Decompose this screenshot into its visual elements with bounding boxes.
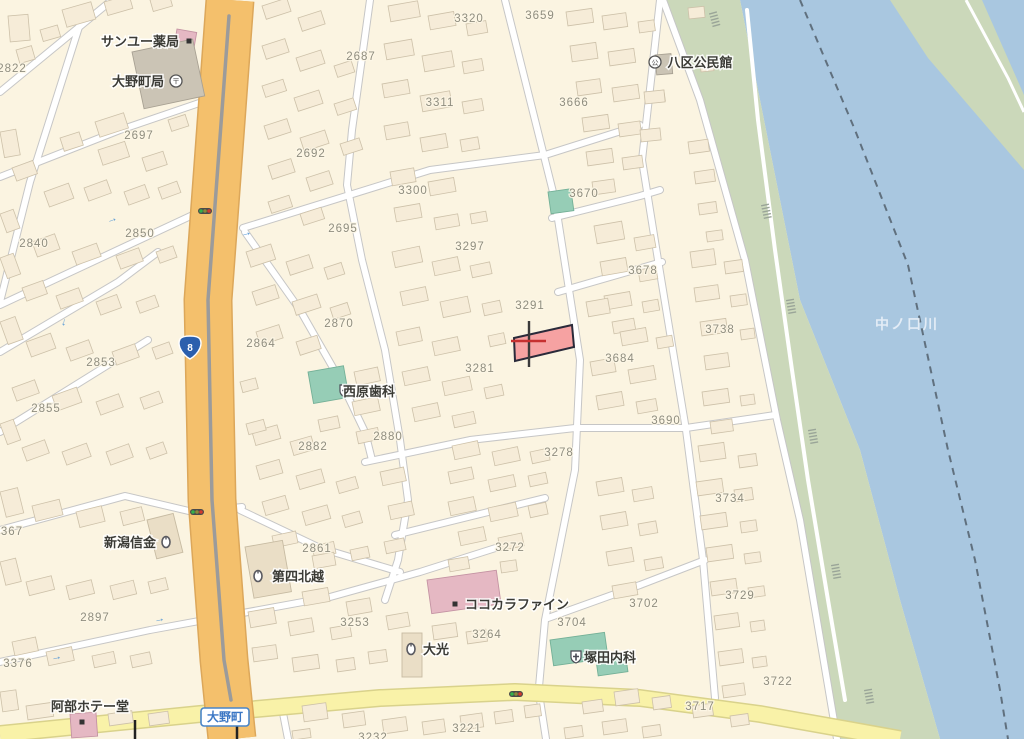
building — [698, 201, 717, 214]
abe-shop-label: 阿部ホテー堂 — [51, 699, 129, 714]
map-svg: 2822269726922687332036593311366636703300… — [0, 0, 1024, 739]
building — [460, 137, 480, 152]
lot-number-label: 3297 — [455, 241, 485, 253]
building — [582, 699, 603, 714]
lot-number-label: 2687 — [346, 51, 376, 63]
building — [706, 230, 723, 242]
lot-number-label: 3300 — [398, 185, 428, 197]
building — [724, 259, 743, 273]
lot-number-label: 2864 — [246, 338, 276, 350]
lot-number-label: 3278 — [544, 447, 574, 459]
lot-number-label: 3666 — [559, 97, 589, 109]
building — [750, 620, 765, 632]
lot-number-label: 2853 — [86, 357, 116, 369]
post-office-icon-glyph: 〒 — [172, 77, 180, 86]
lot-number-label: 3291 — [515, 300, 545, 312]
building — [714, 613, 740, 630]
lot-number-label: 2850 — [125, 228, 155, 240]
building — [710, 419, 733, 434]
building — [694, 285, 720, 302]
sanyu-pharmacy-label: サンユー薬局 — [101, 34, 179, 49]
lot-number-label: 3272 — [495, 542, 525, 554]
building — [638, 20, 655, 33]
traffic-light-red — [207, 209, 211, 213]
lot-number-label: 2692 — [296, 148, 326, 160]
lot-number-label: 3738 — [705, 324, 735, 336]
building — [0, 690, 19, 712]
lot-number-label: 3684 — [605, 353, 635, 365]
hachiku-community-hall-label: 八区公民館 — [666, 55, 732, 70]
river-name-label: 中ノ口川 — [875, 316, 939, 332]
place-badge-label: 大野町 — [207, 709, 243, 724]
lot-number-label: 2855 — [31, 403, 61, 415]
route-shield-number: 8 — [187, 343, 193, 354]
building — [586, 298, 610, 317]
lot-number-label: 3253 — [340, 617, 370, 629]
building — [614, 689, 640, 706]
building — [8, 14, 30, 42]
abe-shop-building — [70, 712, 98, 738]
building — [622, 155, 643, 170]
lot-number-label: 3678 — [628, 265, 658, 277]
building — [740, 520, 757, 533]
building — [618, 121, 642, 137]
building — [576, 79, 602, 96]
traffic-light-red — [199, 510, 203, 514]
building — [730, 294, 747, 307]
lot-number-label: 3659 — [525, 10, 555, 22]
building — [500, 560, 517, 573]
building — [148, 711, 169, 726]
tsukada-clinic-label: 塚田内科 — [584, 650, 636, 665]
lot-number-label: 3311 — [426, 97, 455, 109]
building — [368, 649, 387, 663]
daishi-hokuetsu-label: 第四北越 — [272, 569, 325, 584]
building — [718, 649, 744, 666]
building — [602, 719, 628, 735]
building — [688, 139, 709, 154]
lot-number-label: 2897 — [80, 612, 110, 624]
traffic-light-yellow — [195, 510, 199, 514]
building — [342, 711, 366, 728]
building — [638, 521, 658, 536]
poi-dot-icon — [187, 39, 192, 44]
nishihara-dental-label: 西原歯科 — [343, 384, 395, 399]
hospital-icon — [571, 651, 581, 663]
building — [722, 683, 745, 698]
building — [704, 353, 730, 370]
lot-number-label: 3320 — [454, 13, 484, 25]
traffic-light-icon — [198, 208, 212, 214]
lot-number-label: 367 — [1, 526, 23, 538]
traffic-light-yellow — [514, 692, 518, 696]
lot-number-label: 3722 — [763, 676, 793, 688]
onomachi-post-office-label: 大野町局 — [112, 74, 164, 89]
daiko-label: 大光 — [423, 642, 449, 657]
building — [744, 552, 761, 564]
map-canvas[interactable]: 2822269726922687332036593311366636703300… — [0, 0, 1024, 739]
building — [698, 442, 726, 461]
building — [640, 128, 661, 142]
building — [524, 704, 542, 718]
traffic-light-green — [199, 209, 203, 213]
building — [740, 328, 755, 340]
lot-number-label: 2822 — [0, 63, 27, 75]
lot-number-label: 3734 — [715, 493, 745, 505]
lot-number-label: 3702 — [629, 598, 659, 610]
community-hall-icon-glyph: 公 — [652, 59, 659, 67]
building — [432, 623, 458, 640]
building — [336, 657, 355, 671]
lot-number-label: 3221 — [452, 723, 482, 735]
lot-number-label: 2880 — [373, 431, 403, 443]
building — [644, 90, 665, 104]
lot-number-label: 2697 — [124, 130, 154, 142]
building — [752, 656, 767, 668]
building — [694, 169, 715, 184]
lot-number-label: 3704 — [557, 617, 587, 629]
traffic-light-icon — [190, 509, 204, 515]
building — [642, 299, 660, 313]
building — [602, 13, 628, 30]
poi-dot-icon — [453, 602, 458, 607]
lot-number-label: 3690 — [651, 415, 681, 427]
lot-number-label: 2695 — [328, 223, 358, 235]
lot-number-label: 3264 — [472, 629, 502, 641]
building — [730, 713, 749, 726]
niigata-shinkin-label: 新潟信金 — [104, 535, 157, 550]
building — [252, 645, 278, 662]
traffic-light-green — [191, 510, 195, 514]
traffic-light-yellow — [203, 209, 207, 213]
lot-number-label: 2861 — [302, 543, 332, 555]
lot-number-label: 3376 — [3, 658, 33, 670]
building — [564, 725, 583, 738]
building — [740, 394, 755, 406]
lot-number-label: 3281 — [465, 363, 495, 375]
building — [570, 42, 598, 61]
lot-number-label: 2840 — [19, 238, 49, 250]
one-way-arrow-icon: → — [58, 316, 72, 329]
building — [690, 249, 716, 268]
building — [652, 695, 671, 709]
poi-dot-icon — [80, 720, 85, 725]
building — [656, 335, 674, 349]
lot-number-label: 3670 — [569, 188, 599, 200]
building — [494, 709, 513, 723]
lot-number-label: 3729 — [725, 590, 755, 602]
traffic-light-red — [518, 692, 522, 696]
building — [688, 6, 705, 19]
lot-number-label: 3232 — [358, 732, 388, 739]
lot-number-label: 3717 — [685, 701, 715, 713]
building — [642, 724, 661, 737]
lot-number-label: 2882 — [298, 441, 328, 453]
cocokara-fine-label: ココカラファイン — [465, 597, 569, 612]
lot-number-label: 2870 — [324, 318, 354, 330]
traffic-light-green — [510, 692, 514, 696]
building — [422, 719, 446, 735]
building — [302, 703, 328, 722]
building — [738, 453, 757, 467]
traffic-light-icon — [509, 691, 523, 697]
